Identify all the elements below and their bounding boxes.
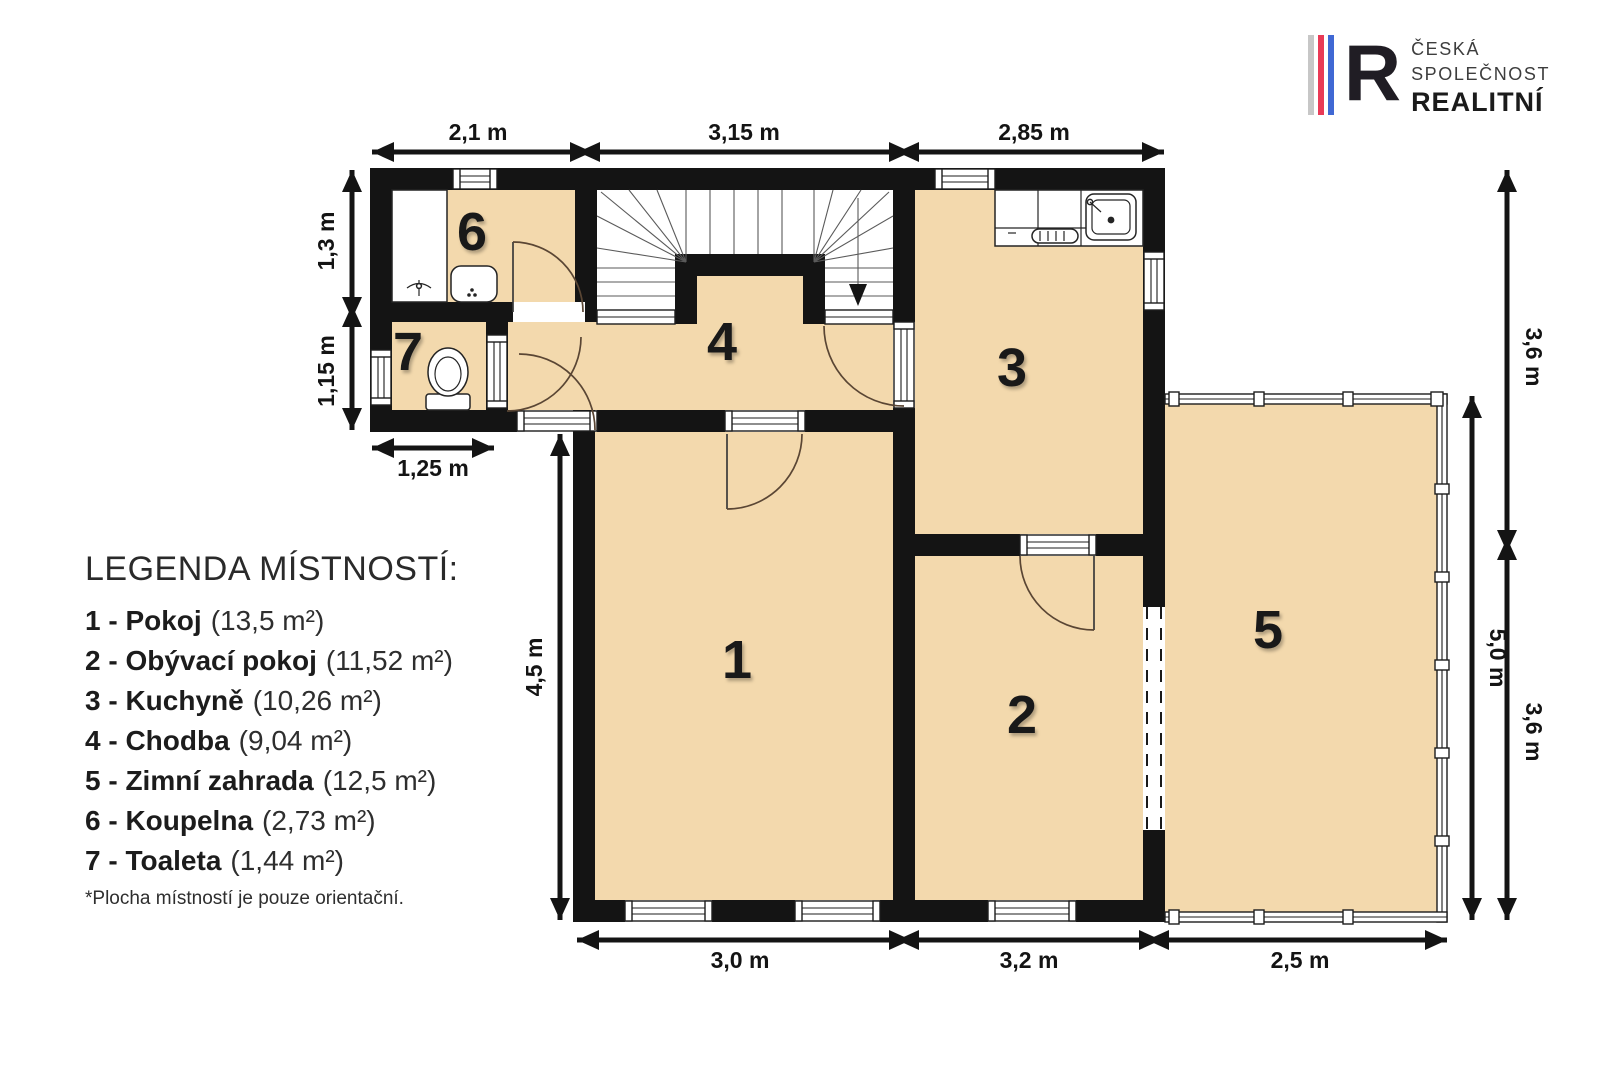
legend-title: LEGENDA MÍSTNOSTÍ: [85,550,555,589]
dimension-label: 1,3 m [313,212,339,271]
room-number-3: 3 [997,338,1027,398]
logo-stripe-blue [1328,35,1334,115]
room-2-3-door-opening [1020,535,1096,555]
window [795,901,880,921]
window [935,169,995,189]
entrance-door [517,411,597,431]
bathtub [392,190,447,302]
room-1-door-opening [725,411,805,431]
window [371,350,391,405]
logo-line-2: SPOLEČNOST [1411,62,1550,87]
legend-item: 3 - Kuchyně(10,26 m²) [85,681,555,721]
logo-line-3: REALITNÍ [1411,87,1550,118]
legend-item: 2 - Obývací pokoj(11,52 m²) [85,641,555,681]
window [1144,252,1164,310]
dimension-label: 3,0 m [711,947,770,973]
window [988,901,1076,921]
room-number-1: 1 [722,630,752,690]
legend-item: 4 - Chodba(9,04 m²) [85,721,555,761]
dish-rack [1032,229,1078,243]
logo-line-1: ČESKÁ [1411,37,1550,62]
room-6-door-opening [513,302,585,322]
floor-plan-page: 1 2 3 4 5 6 7 2,1 m 3,15 m 2,85 m 1,3 m … [0,0,1620,1080]
window [453,169,497,189]
logo-stripe-gray [1308,35,1314,115]
room-number-7: 7 [393,322,423,382]
dimension-label: 3,6 m [1521,703,1547,762]
legend-item: 1 - Pokoj(13,5 m²) [85,601,555,641]
legend-item: 6 - Koupelna(2,73 m²) [85,801,555,841]
kitchen-hall-door-opening [894,322,914,408]
kitchen-sink [1086,194,1136,240]
logo-stripe-red [1318,35,1324,115]
dimension-label: 2,5 m [1271,947,1330,973]
room-number-4: 4 [707,312,737,372]
room-2-5-opening [1144,607,1164,830]
brand-logo: R ČESKÁ SPOLEČNOST REALITNÍ [1308,33,1550,118]
logo-stripes-icon [1308,35,1338,115]
legend-footnote: *Plocha místností je pouze orientační. [85,888,555,910]
kitchen-counter [995,190,1143,246]
bathroom-sink [451,266,497,302]
room-number-5: 5 [1253,600,1283,660]
legend-list: 1 - Pokoj(13,5 m²) 2 - Obývací pokoj(11,… [85,601,555,881]
floorplan-svg: 1 2 3 4 5 6 7 2,1 m 3,15 m 2,85 m 1,3 m … [0,0,1620,1080]
dimension-label: 3,2 m [1000,947,1059,973]
dimension-label: 3,6 m [1521,328,1547,387]
room-number-6: 6 [457,202,487,262]
winter-garden-floor [1165,404,1437,912]
room-7-door-opening [487,335,507,408]
toilet [426,348,470,410]
dimension-label: 2,85 m [998,119,1070,145]
logo-r-icon: R [1344,33,1399,113]
legend-item: 7 - Toaleta(1,44 m²) [85,841,555,881]
room-legend: LEGENDA MÍSTNOSTÍ: 1 - Pokoj(13,5 m²) 2 … [85,550,555,910]
dimension-label: 1,25 m [397,455,469,481]
logo-text: ČESKÁ SPOLEČNOST REALITNÍ [1411,33,1550,118]
window [625,901,712,921]
dimension-label: 1,15 m [313,335,339,407]
room-number-2: 2 [1007,685,1037,745]
dimension-label: 2,1 m [449,119,508,145]
legend-item: 5 - Zimní zahrada(12,5 m²) [85,761,555,801]
dimension-label: 3,15 m [708,119,780,145]
